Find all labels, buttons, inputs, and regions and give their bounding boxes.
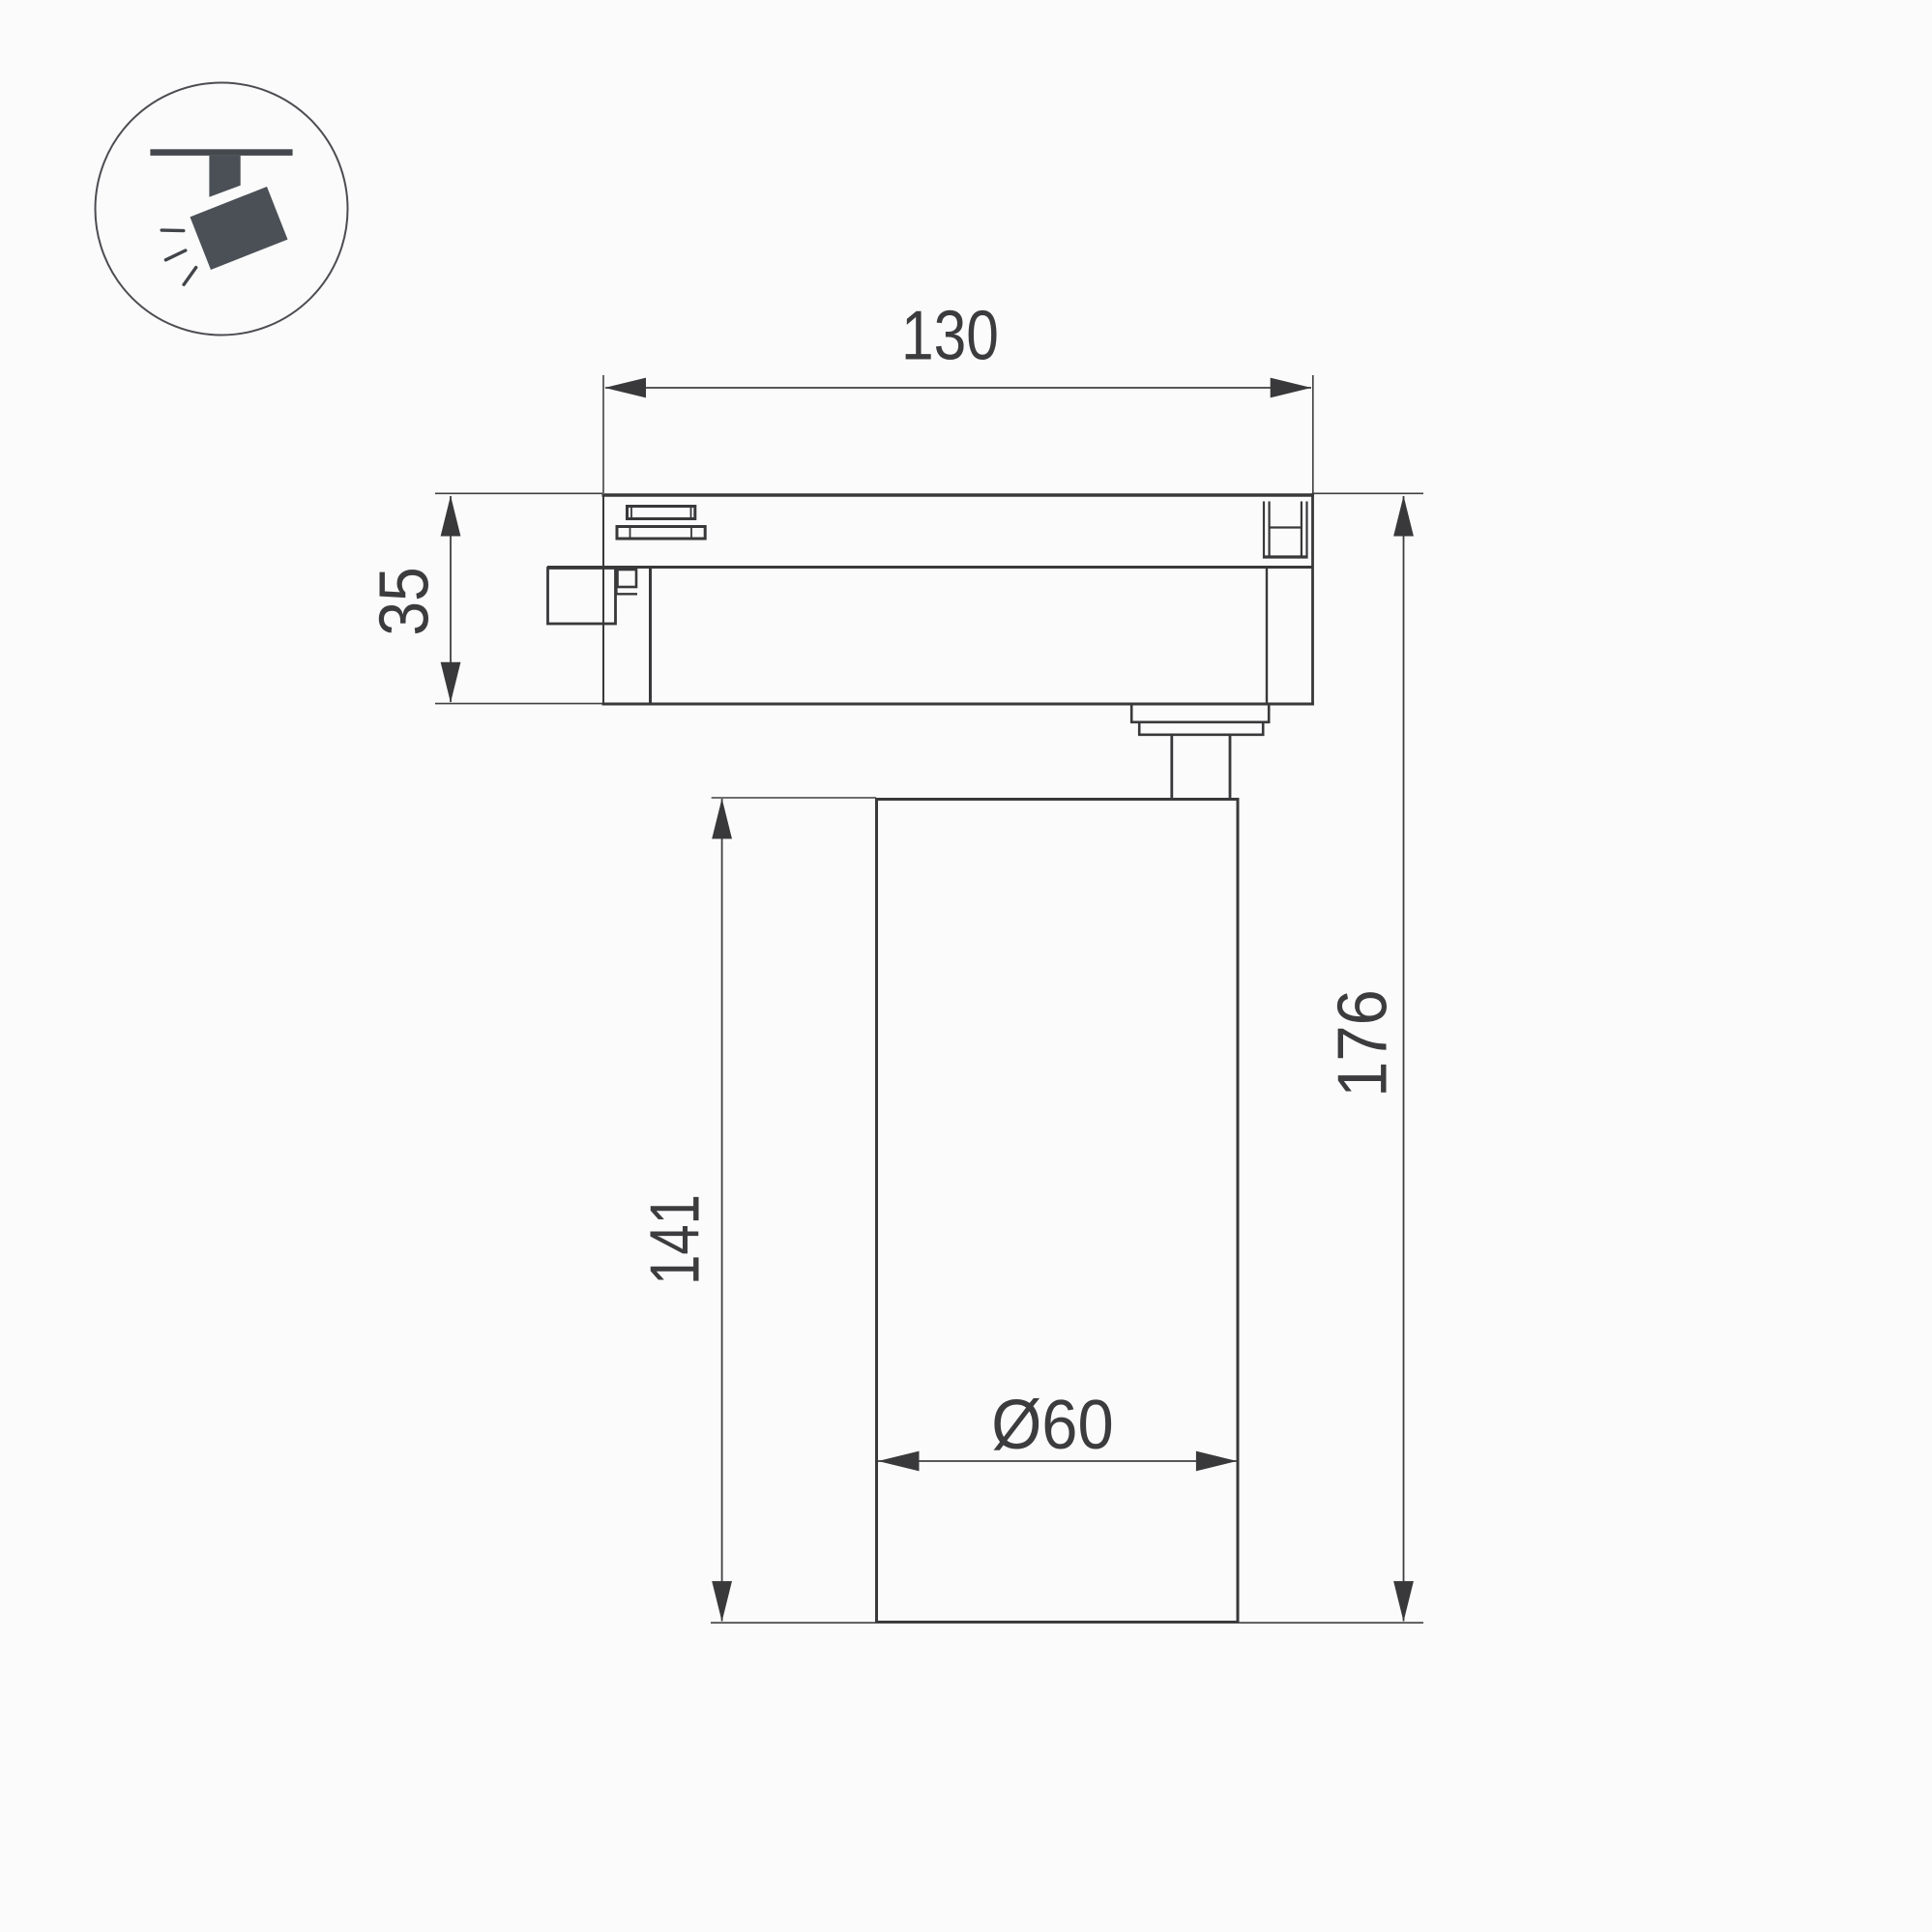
svg-text:Ø60: Ø60 [991, 1386, 1114, 1464]
svg-text:130: 130 [901, 298, 999, 375]
svg-text:141: 141 [636, 1194, 714, 1285]
svg-text:35: 35 [366, 567, 443, 635]
svg-text:176: 176 [1323, 989, 1401, 1098]
